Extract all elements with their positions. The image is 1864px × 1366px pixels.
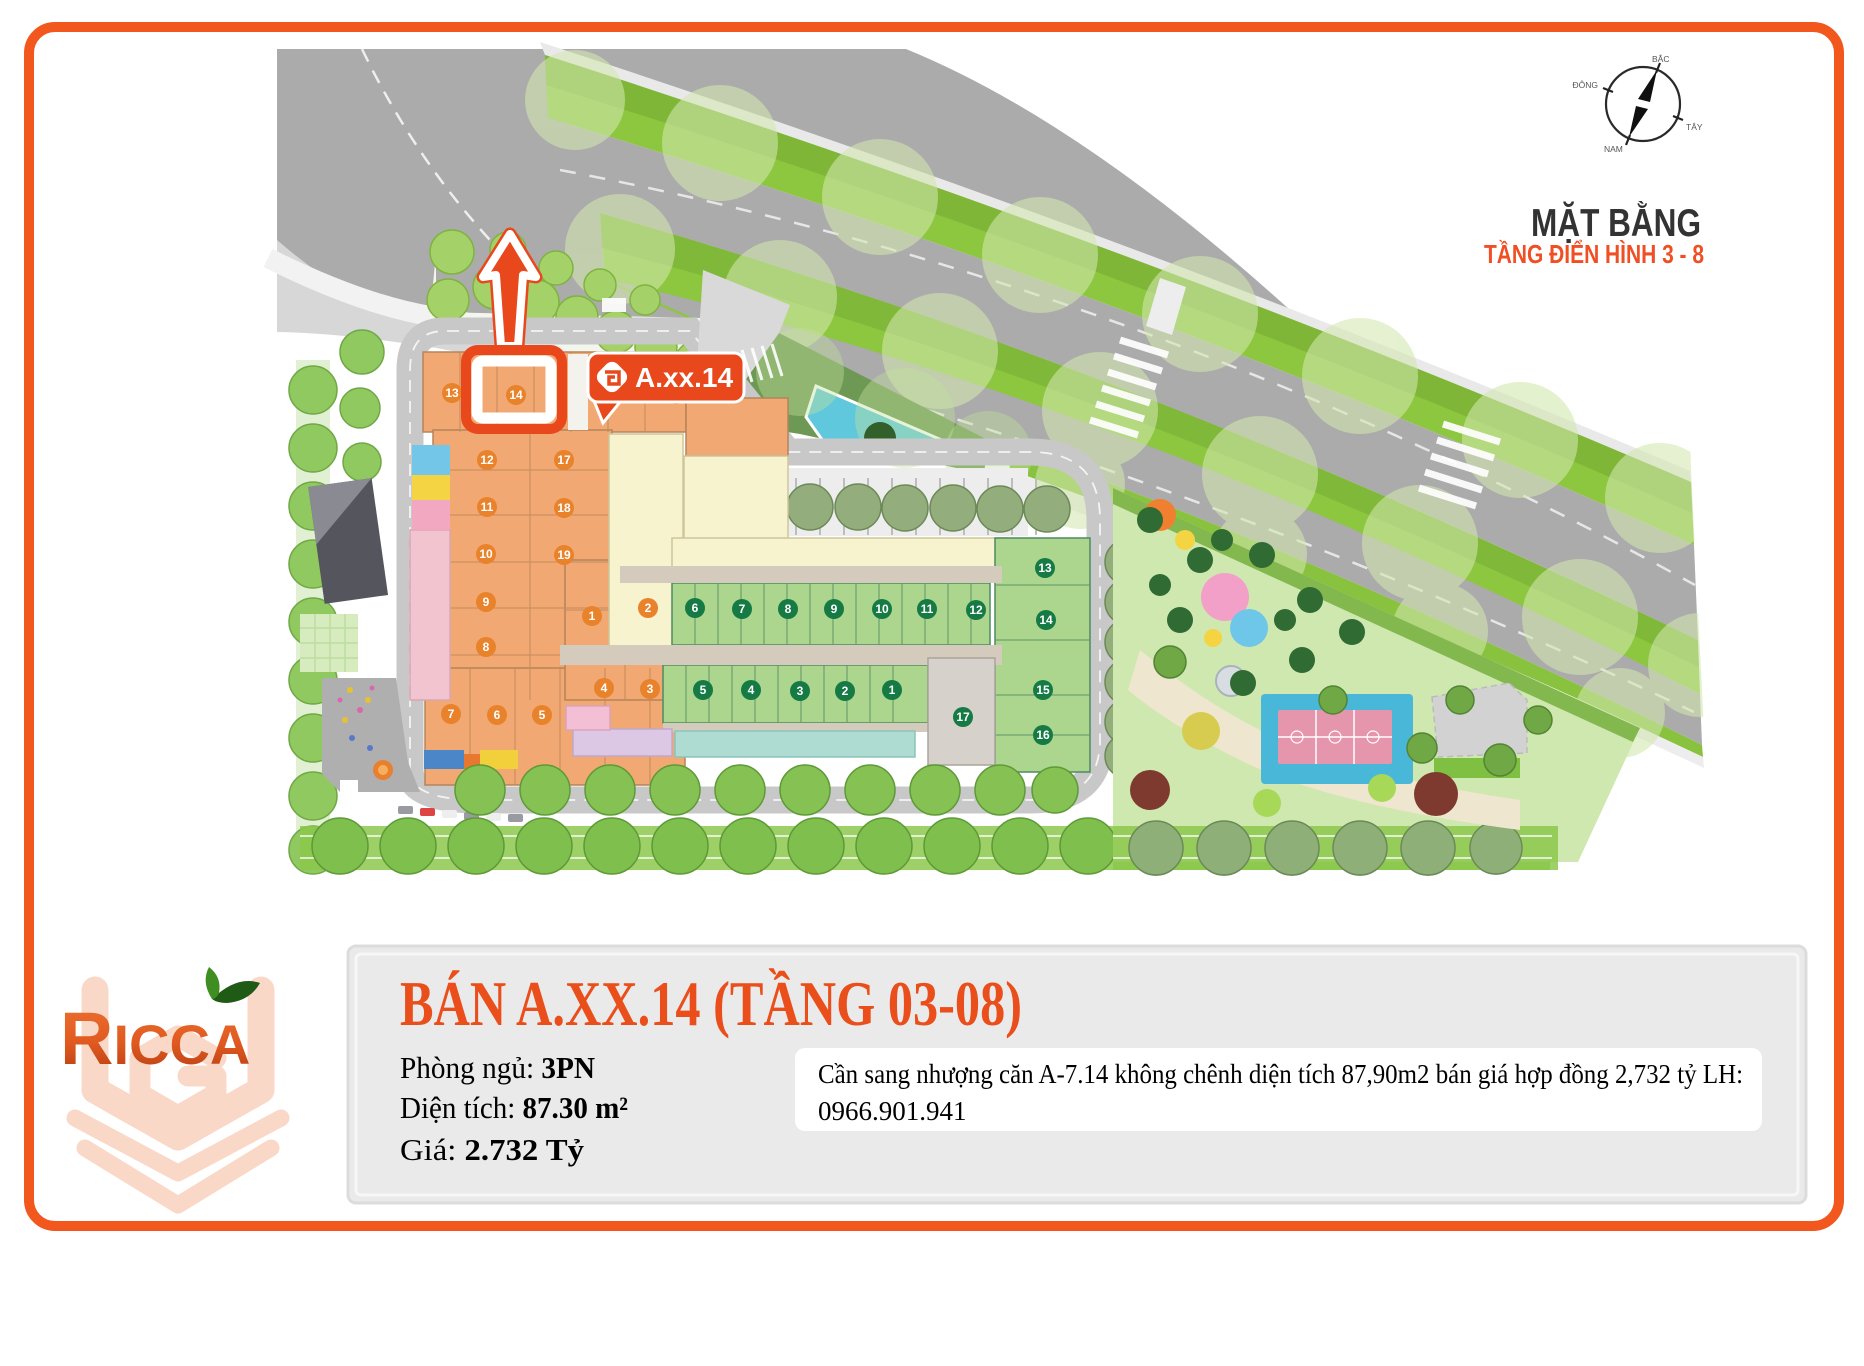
svg-text:17: 17	[956, 710, 970, 724]
svg-text:9: 9	[483, 595, 490, 609]
svg-text:16: 16	[1036, 728, 1050, 742]
svg-text:BÁN A.XX.14 (TẦNG 03-08): BÁN A.XX.14 (TẦNG 03-08)	[400, 968, 1022, 1039]
svg-text:TÂY: TÂY	[1686, 122, 1703, 132]
svg-text:5: 5	[539, 708, 546, 722]
svg-text:18: 18	[557, 501, 571, 515]
svg-text:3: 3	[797, 684, 804, 698]
svg-text:14: 14	[1039, 613, 1053, 627]
svg-text:15: 15	[1036, 683, 1050, 697]
svg-text:NAM: NAM	[1604, 144, 1623, 154]
svg-text:14: 14	[509, 388, 523, 402]
svg-text:12: 12	[969, 603, 983, 617]
svg-text:ĐÔNG: ĐÔNG	[1573, 80, 1599, 90]
svg-text:9: 9	[831, 602, 838, 616]
svg-text:10: 10	[875, 602, 889, 616]
svg-text:Giá: 2.732 Tỷ: Giá: 2.732 Tỷ	[400, 1132, 585, 1167]
svg-text:6: 6	[692, 601, 699, 615]
svg-text:12: 12	[480, 453, 494, 467]
svg-text:1: 1	[589, 609, 596, 623]
svg-text:Phòng ngủ: 3PN: Phòng ngủ: 3PN	[400, 1050, 595, 1085]
svg-text:8: 8	[483, 640, 490, 654]
svg-text:17: 17	[557, 453, 571, 467]
svg-text:2: 2	[645, 601, 652, 615]
svg-text:10: 10	[479, 547, 493, 561]
svg-text:4: 4	[601, 681, 608, 695]
svg-text:7: 7	[448, 707, 455, 721]
svg-text:13: 13	[445, 386, 459, 400]
svg-text:11: 11	[481, 500, 494, 514]
svg-text:Cần sang nhượng căn A-7.14 khô: Cần sang nhượng căn A-7.14 không chênh d…	[818, 1059, 1743, 1089]
svg-text:TẦNG ĐIỂN HÌNH 3 - 8: TẦNG ĐIỂN HÌNH 3 - 8	[1484, 239, 1704, 269]
svg-text:19: 19	[557, 548, 571, 562]
svg-text:2: 2	[842, 684, 849, 698]
svg-text:13: 13	[1038, 561, 1052, 575]
svg-text:11: 11	[921, 602, 934, 616]
svg-text:1: 1	[889, 683, 896, 697]
svg-text:8: 8	[785, 602, 792, 616]
svg-text:0966.901.941: 0966.901.941	[818, 1096, 967, 1126]
svg-text:3: 3	[647, 682, 654, 696]
svg-text:A.xx.14: A.xx.14	[635, 362, 733, 393]
svg-text:BẮC: BẮC	[1652, 54, 1669, 64]
svg-text:Diện tích: 87.30 m²: Diện tích: 87.30 m²	[400, 1090, 628, 1125]
svg-text:7: 7	[739, 602, 746, 616]
svg-text:6: 6	[494, 708, 501, 722]
svg-text:4: 4	[748, 683, 755, 697]
svg-text:5: 5	[700, 683, 707, 697]
